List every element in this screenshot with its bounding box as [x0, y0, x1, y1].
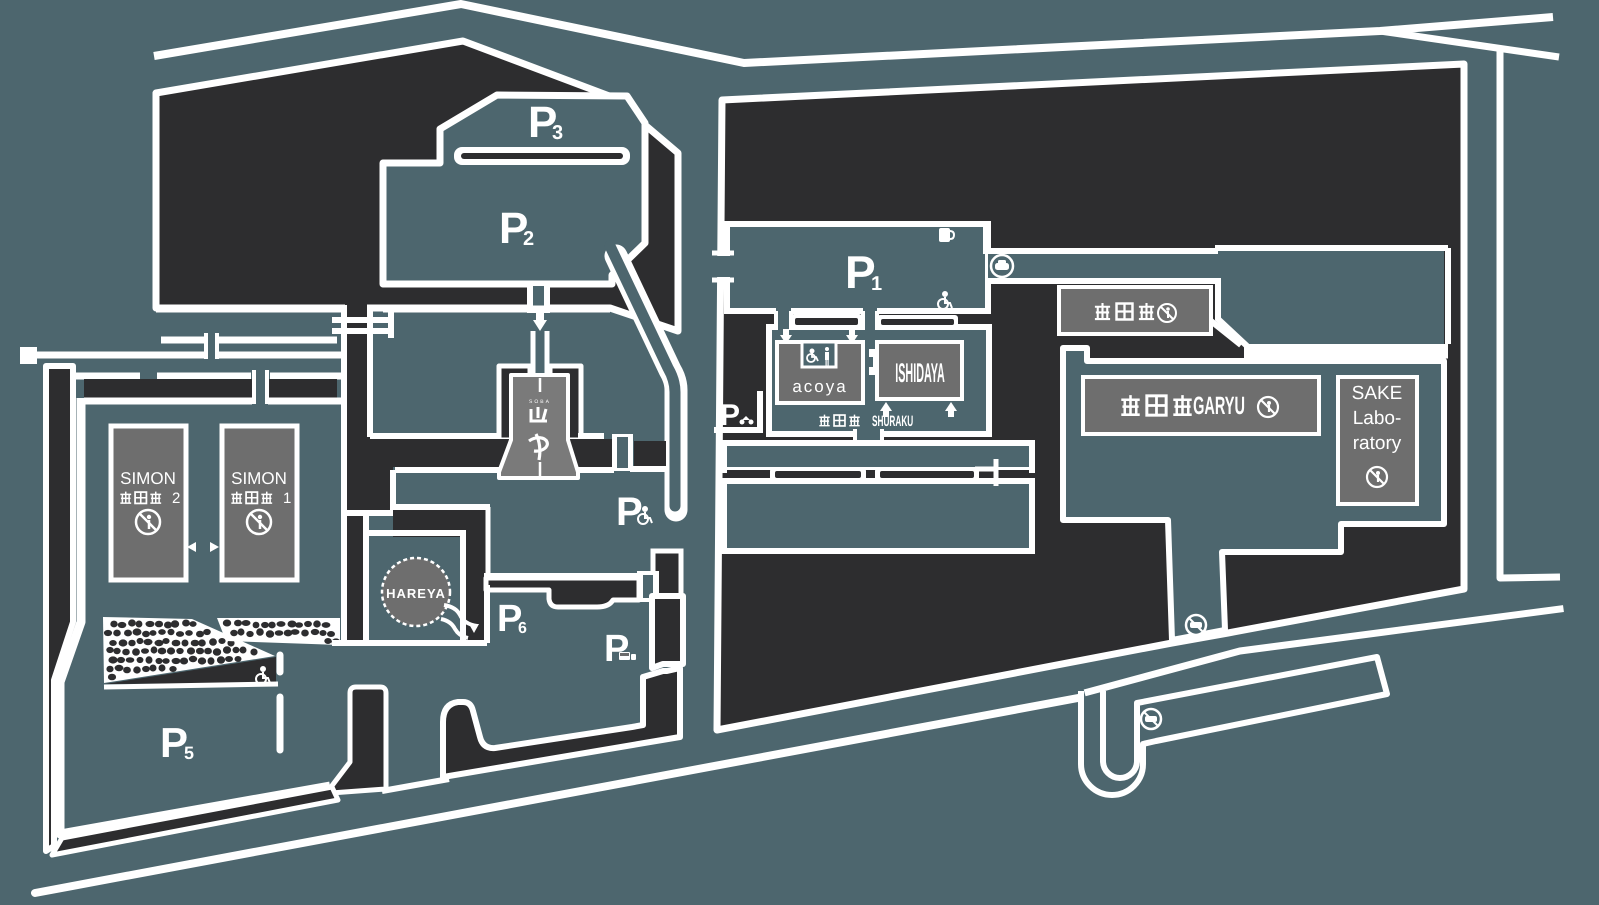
svg-text:5: 5 [184, 743, 194, 763]
svg-text:P: P [720, 399, 740, 432]
svg-text:1: 1 [871, 273, 882, 295]
svg-text:ISHIDAYA: ISHIDAYA [895, 358, 945, 388]
svg-text:2: 2 [172, 490, 180, 507]
svg-text:Labo-: Labo- [1353, 408, 1402, 429]
svg-text:2: 2 [523, 228, 534, 250]
svg-text:P: P [604, 628, 629, 670]
svg-text:SIMON: SIMON [231, 469, 287, 488]
svg-text:acoya: acoya [792, 377, 847, 396]
svg-text:3: 3 [552, 122, 563, 144]
svg-text:SIMON: SIMON [120, 469, 176, 488]
svg-text:1: 1 [283, 490, 291, 507]
svg-text:SAKE: SAKE [1352, 383, 1403, 404]
svg-text:6: 6 [518, 620, 527, 637]
svg-text:SOBA: SOBA [529, 399, 551, 405]
svg-text:GARYU: GARYU [1193, 392, 1245, 420]
svg-text:ratory: ratory [1353, 433, 1402, 454]
svg-text:P: P [616, 490, 643, 534]
svg-text:HAREYA: HAREYA [386, 586, 446, 601]
svg-text:SHURAKU: SHURAKU [872, 413, 913, 430]
